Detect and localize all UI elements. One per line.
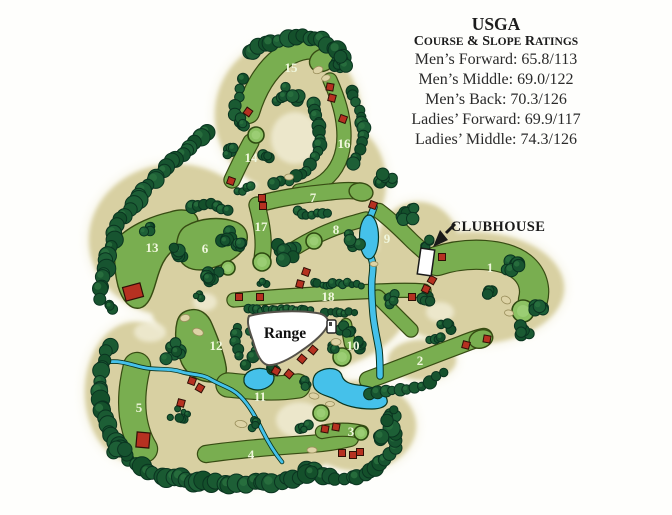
svg-text:6: 6	[202, 241, 209, 256]
svg-text:8: 8	[333, 222, 340, 237]
svg-text:15: 15	[285, 60, 299, 75]
svg-text:COURSE & SLOPE RATINGS: COURSE & SLOPE RATINGS	[414, 34, 578, 49]
svg-text:Ladies’ Middle: 74.3/126: Ladies’ Middle: 74.3/126	[415, 131, 577, 148]
svg-text:CLUBHOUSE: CLUBHOUSE	[451, 219, 546, 235]
svg-text:Men’s Back: 70.3/126: Men’s Back: 70.3/126	[425, 91, 567, 108]
svg-text:Ladies’ Forward: 69.9/117: Ladies’ Forward: 69.9/117	[411, 111, 580, 128]
svg-text:7: 7	[310, 190, 317, 205]
svg-text:3: 3	[348, 424, 355, 439]
svg-text:4: 4	[248, 447, 255, 462]
svg-text:Men’s Middle: 69.0/122: Men’s Middle: 69.0/122	[418, 71, 573, 88]
svg-text:18: 18	[322, 289, 336, 304]
svg-text:16: 16	[338, 136, 352, 151]
svg-text:9: 9	[384, 231, 391, 246]
svg-text:2: 2	[417, 353, 424, 368]
svg-text:11: 11	[254, 389, 266, 404]
svg-text:12: 12	[210, 338, 223, 353]
svg-text:17: 17	[255, 219, 269, 234]
svg-text:10: 10	[347, 338, 360, 353]
svg-text:13: 13	[146, 240, 160, 255]
svg-text:Range: Range	[264, 325, 306, 342]
svg-text:5: 5	[136, 400, 143, 415]
svg-text:Men’s Forward: 65.8/113: Men’s Forward: 65.8/113	[415, 51, 578, 68]
svg-text:14: 14	[245, 150, 259, 165]
svg-text:1: 1	[487, 260, 494, 275]
svg-text:USGA: USGA	[472, 14, 521, 34]
